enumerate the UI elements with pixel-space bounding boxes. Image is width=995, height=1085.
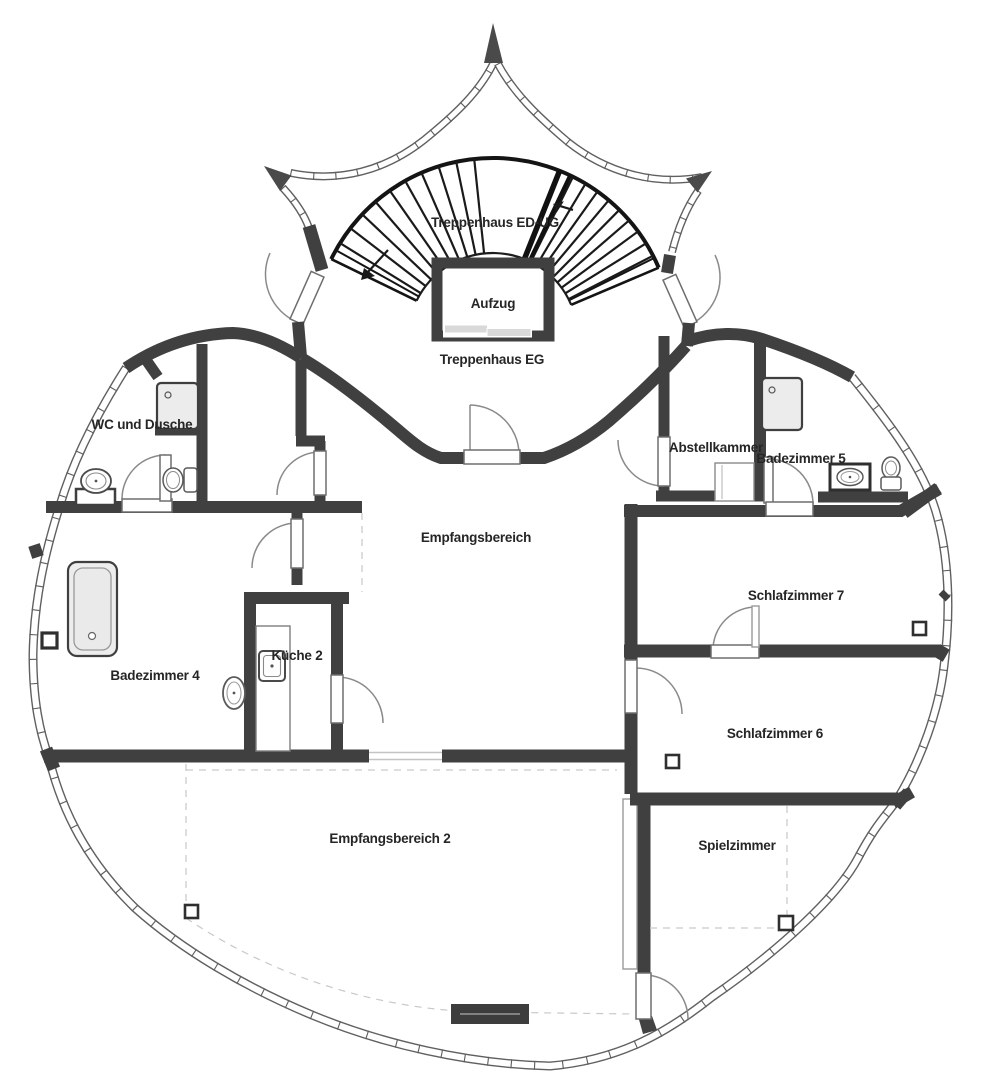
svg-text:Aufzug: Aufzug — [471, 296, 516, 311]
svg-text:Abstellkammer: Abstellkammer — [669, 440, 764, 455]
svg-text:Küche 2: Küche 2 — [271, 648, 322, 663]
svg-text:Empfangsbereich: Empfangsbereich — [421, 530, 531, 545]
svg-text:Schlafzimmer 7: Schlafzimmer 7 — [748, 588, 844, 603]
svg-text:Treppenhaus EG: Treppenhaus EG — [440, 352, 544, 367]
svg-text:Empfangsbereich 2: Empfangsbereich 2 — [329, 831, 450, 846]
svg-text:Treppenhaus ED-UG: Treppenhaus ED-UG — [431, 215, 559, 230]
svg-text:Badezimmer 5: Badezimmer 5 — [756, 451, 846, 466]
svg-text:Badezimmer 4: Badezimmer 4 — [110, 668, 200, 683]
svg-text:WC und Dusche: WC und Dusche — [92, 417, 194, 432]
svg-text:Schlafzimmer 6: Schlafzimmer 6 — [727, 726, 824, 741]
svg-text:Spielzimmer: Spielzimmer — [698, 838, 776, 853]
